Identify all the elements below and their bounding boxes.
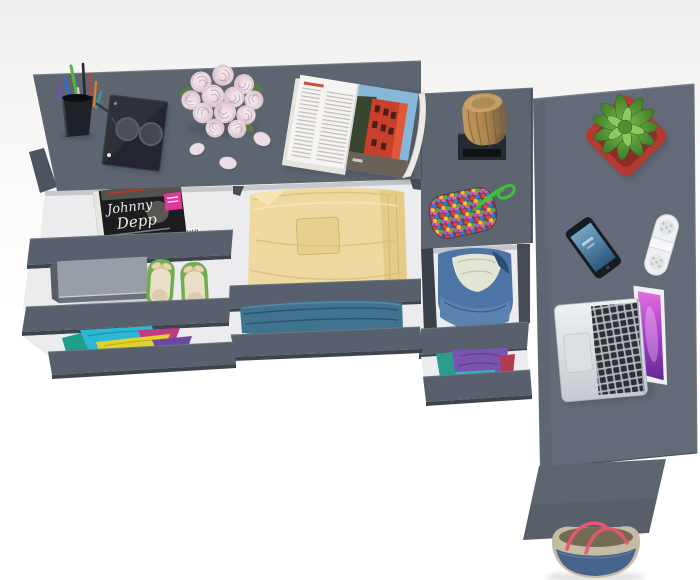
tablet-with-glasses (101, 95, 170, 175)
yellow-folded-clothes (248, 188, 407, 292)
tote-bag (545, 523, 645, 580)
yellow-clothes-drawer (228, 179, 421, 291)
wooden-stool (458, 91, 510, 160)
laptop-trackpad (563, 333, 592, 373)
furniture-render: Johnny Depp (0, 0, 700, 580)
product-image: Johnny Depp (0, 0, 700, 580)
denim-jacket (438, 248, 513, 331)
denim-jacket-drawer (420, 244, 530, 333)
